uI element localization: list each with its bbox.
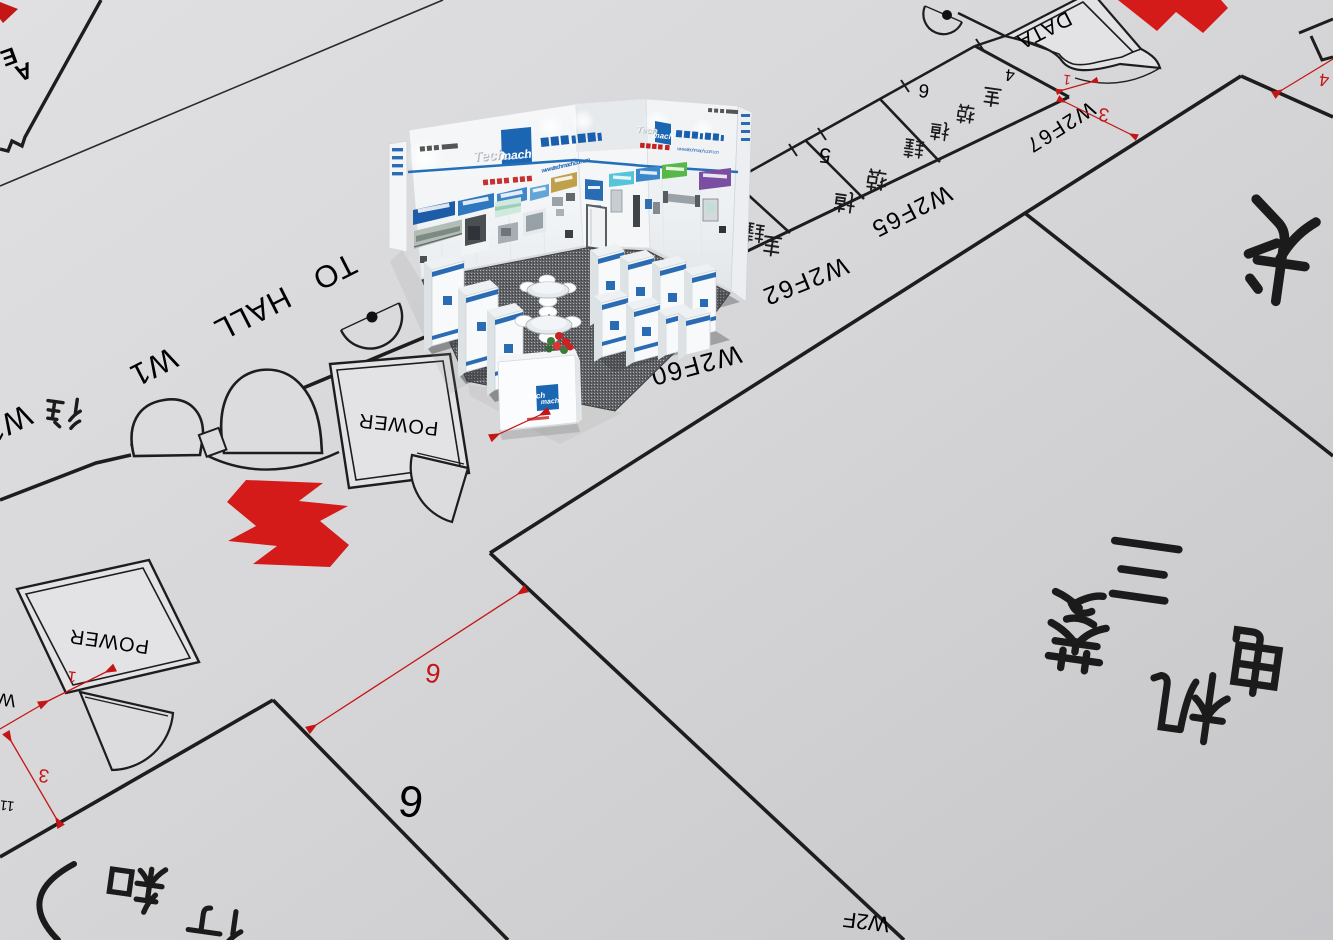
- svg-text:mach: mach: [500, 147, 532, 164]
- svg-text:W: W: [0, 689, 17, 711]
- svg-text:11: 11: [0, 797, 15, 815]
- svg-text:mach: mach: [652, 131, 674, 142]
